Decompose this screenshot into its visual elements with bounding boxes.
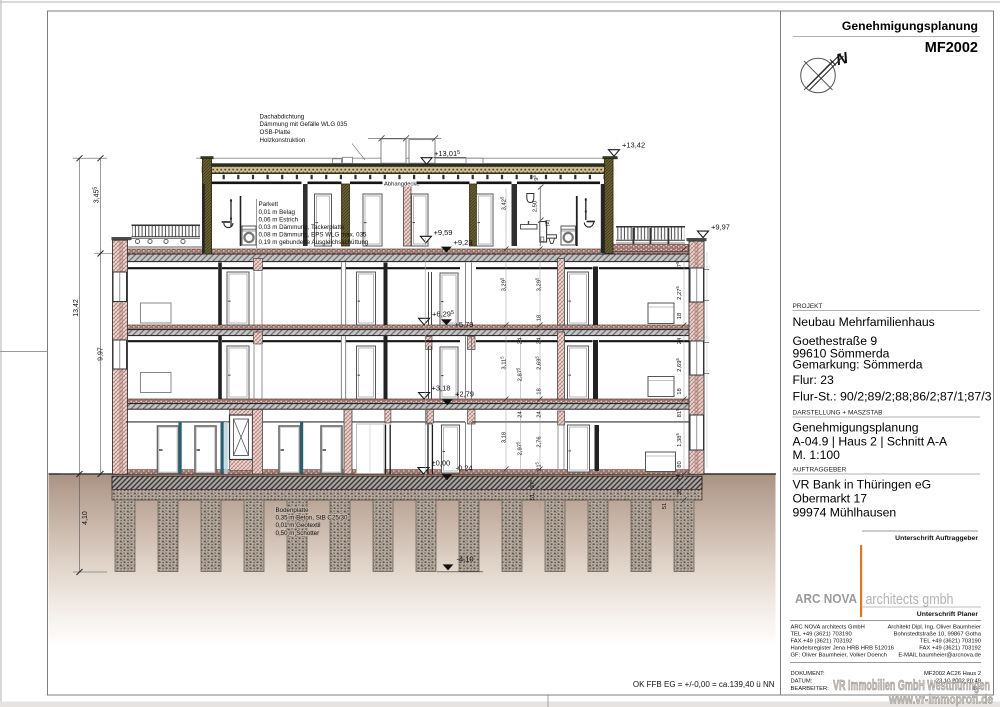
svg-text:Unterschrift Auftraggeber: Unterschrift Auftraggeber	[895, 535, 978, 542]
svg-text:MF2002: MF2002	[925, 40, 978, 56]
svg-text:24: 24	[676, 474, 682, 481]
svg-text:-4,10: -4,10	[457, 555, 474, 564]
svg-text:FAX +49 (3621) 703192: FAX +49 (3621) 703192	[791, 639, 853, 645]
svg-text:Flur-St.: 90/2;89/2;88;86/2;87: Flur-St.: 90/2;89/2;88;86/2;87/1;87/3	[793, 390, 992, 404]
svg-text:BEARBEITER:: BEARBEITER:	[791, 686, 830, 692]
svg-text:0,19 m gebundene Ausgleichssc: 0,19 m gebundene Ausgleichsschüttung	[259, 239, 369, 246]
svg-text:TEL +49 (3621) 703190: TEL +49 (3621) 703190	[920, 639, 981, 645]
svg-text:(2): (2)	[545, 219, 551, 226]
svg-text:+9,59: +9,59	[434, 228, 453, 237]
svg-text:4,10: 4,10	[82, 511, 89, 525]
svg-text:+13,015: +13,015	[434, 149, 460, 158]
svg-text:0,50 m Schotter: 0,50 m Schotter	[276, 530, 320, 537]
svg-text:ARC NOVA architects GmbH: ARC NOVA architects GmbH	[791, 625, 865, 631]
svg-text:0,01 m Geotextil: 0,01 m Geotextil	[276, 522, 321, 529]
svg-text:VR Bank in Thüringen eG: VR Bank in Thüringen eG	[793, 478, 932, 492]
svg-text:18: 18	[677, 313, 683, 319]
svg-text:M. 1:100: M. 1:100	[793, 448, 841, 462]
svg-text:DOKUMENT:: DOKUMENT:	[791, 671, 826, 677]
svg-text:Dämmung mit Gefälle WLG 035: Dämmung mit Gefälle WLG 035	[260, 121, 348, 128]
svg-text:0,35 m Beton, StB C25/30: 0,35 m Beton, StB C25/30	[276, 515, 348, 522]
svg-text:24: 24	[537, 337, 543, 344]
svg-text:+3,18: +3,18	[432, 384, 451, 393]
svg-text:24: 24	[518, 337, 524, 344]
svg-text:PROJEKT: PROJEKT	[793, 303, 823, 310]
svg-text:A-04.9 | Haus 2 | Schnitt A-A: A-04.9 | Haus 2 | Schnitt A-A	[793, 435, 949, 449]
svg-text:+5,79: +5,79	[455, 320, 474, 329]
svg-text:99974 Mühlhausen: 99974 Mühlhausen	[793, 506, 897, 520]
svg-text:3,18: 3,18	[502, 432, 508, 443]
svg-text:18: 18	[677, 388, 683, 394]
svg-text:0,08 m Dämmung, EPS WLG max.: 0,08 m Dämmung, EPS WLG max. 035	[259, 232, 368, 239]
svg-text:AUFTRAGGEBER: AUFTRAGGEBER	[793, 467, 847, 474]
svg-text:24: 24	[537, 411, 543, 418]
svg-text:DARSTELLUNG + MASZSTAB: DARSTELLUNG + MASZSTAB	[793, 410, 883, 417]
svg-text:24: 24	[677, 337, 683, 344]
svg-text:24: 24	[518, 411, 524, 418]
svg-text:80: 80	[677, 461, 683, 467]
svg-text:+9,23: +9,23	[454, 238, 473, 247]
svg-text:35: 35	[677, 489, 683, 495]
svg-text:9,97: 9,97	[98, 347, 105, 361]
svg-text:Bohnstedtstraße 10, 99867 Goth: Bohnstedtstraße 10, 99867 Gotha	[894, 632, 982, 638]
svg-text:DATUM:: DATUM:	[791, 679, 813, 685]
svg-text:Dachabdichtung: Dachabdichtung	[260, 113, 305, 120]
svg-text:51: 51	[662, 503, 668, 509]
svg-text:0,01 m Belag: 0,01 m Belag	[259, 209, 296, 216]
svg-text:18: 18	[537, 315, 543, 321]
svg-text:+13,42: +13,42	[622, 141, 645, 150]
svg-text:0,06 m Estrich: 0,06 m Estrich	[259, 216, 299, 223]
svg-text:51: 51	[530, 494, 536, 500]
svg-text:Unterschrift Planer: Unterschrift Planer	[917, 611, 979, 618]
svg-text:Holzkonstruktion: Holzkonstruktion	[260, 137, 306, 144]
svg-text:FAX +49 (3621) 703192: FAX +49 (3621) 703192	[919, 646, 981, 652]
svg-text:+9,97: +9,97	[711, 223, 730, 232]
svg-text:architects gmbh: architects gmbh	[866, 592, 954, 608]
svg-text:www.vr-immoprofi.de: www.vr-immoprofi.de	[888, 693, 993, 707]
svg-text:±0,00: ±0,00	[432, 459, 451, 468]
svg-text:Gemarkung: Sömmerda: Gemarkung: Sömmerda	[793, 358, 923, 372]
svg-text:OK FFB EG = +/-0,00 = ca.139,4: OK FFB EG = +/-0,00 = ca.139,40 ü NN	[633, 680, 775, 689]
svg-text:Genehmigungsplanung: Genehmigungsplanung	[842, 19, 978, 33]
svg-text:ARC NOVA: ARC NOVA	[795, 592, 857, 606]
svg-text:+2,79: +2,79	[455, 390, 474, 399]
svg-text:13,42: 13,42	[73, 299, 80, 317]
svg-text:TEL +49 (3621) 703190: TEL +49 (3621) 703190	[791, 632, 852, 638]
svg-text:GF: Oliver Baumheier, Volker D: GF: Oliver Baumheier, Volker Doench	[791, 653, 888, 659]
svg-text:18: 18	[537, 388, 543, 394]
svg-text:Abhangdecke: Abhangdecke	[384, 181, 419, 187]
svg-text:OSB-Platte: OSB-Platte	[260, 129, 292, 136]
svg-text:Bodenplatte: Bodenplatte	[276, 507, 310, 514]
svg-text:-0,24: -0,24	[456, 463, 473, 472]
svg-text:2,50: 2,50	[533, 201, 539, 212]
svg-text:Genehmigungsplanung: Genehmigungsplanung	[793, 421, 919, 435]
svg-text:MF2002 AC26 Haus 2: MF2002 AC26 Haus 2	[924, 671, 981, 677]
svg-text:0,03 m Dämmung, Tackerplatte: 0,03 m Dämmung, Tackerplatte	[259, 224, 345, 231]
svg-text:Obermarkt 17: Obermarkt 17	[793, 492, 868, 506]
svg-text:E-MAIL baumheier@arcnova.de: E-MAIL baumheier@arcnova.de	[898, 653, 981, 659]
svg-text:+6,295: +6,295	[432, 309, 454, 318]
svg-text:Neubau Mehrfamilienhaus: Neubau Mehrfamilienhaus	[793, 315, 935, 329]
svg-text:Parkett: Parkett	[259, 201, 279, 208]
svg-text:Flur: 23: Flur: 23	[793, 373, 835, 387]
svg-text:2,76: 2,76	[537, 436, 543, 447]
svg-text:Architekt Dipl. Ing. Oliver B: Architekt Dipl. Ing. Oliver Baumheier	[888, 625, 981, 631]
svg-text:Handelsregister Jena HRB HRB 5: Handelsregister Jena HRB HRB 512016	[791, 646, 894, 652]
